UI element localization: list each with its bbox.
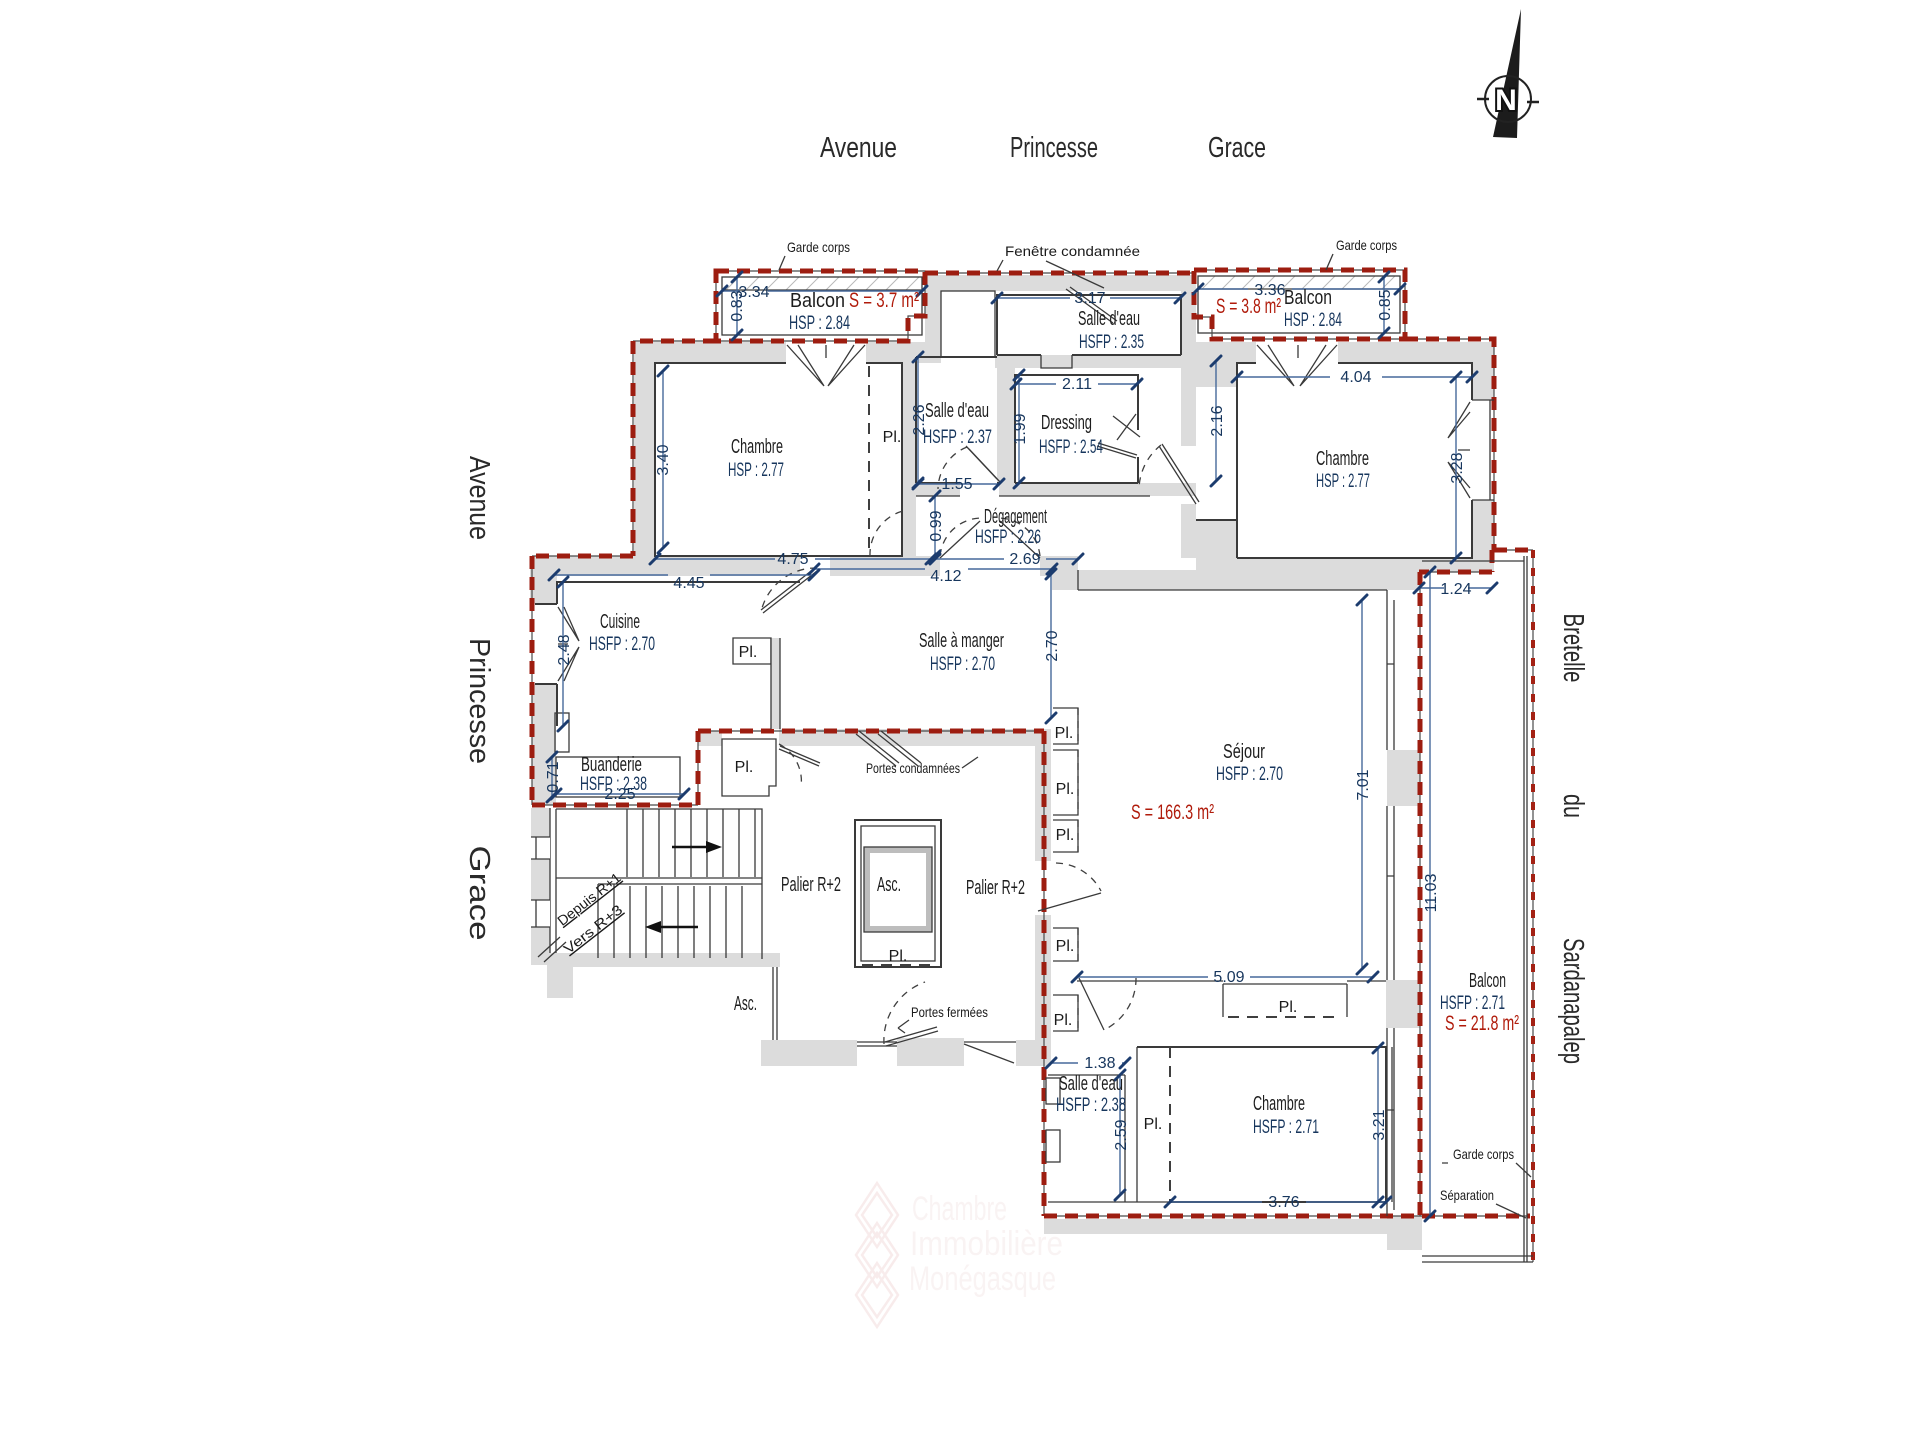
svg-text:Salle d'eau: Salle d'eau (1059, 1073, 1123, 1095)
svg-text:HSFP : 2.71: HSFP : 2.71 (1440, 993, 1505, 1014)
svg-text:Pl.: Pl. (1279, 999, 1298, 1016)
svg-text:Chambre: Chambre (912, 1190, 1007, 1228)
svg-text:Pl.: Pl. (1056, 938, 1075, 955)
svg-text:Grace: Grace (1208, 132, 1266, 164)
svg-text:Asc.: Asc. (877, 874, 901, 896)
svg-text:Sardanapalep: Sardanapalep (1557, 938, 1589, 1064)
svg-text:N: N (1495, 84, 1517, 117)
svg-text:5.09: 5.09 (1213, 969, 1244, 986)
svg-text:Pl.: Pl. (883, 429, 902, 446)
svg-text:4.45: 4.45 (673, 575, 704, 592)
svg-text:11.03: 11.03 (1423, 873, 1440, 912)
svg-text:Palier R+2: Palier R+2 (781, 874, 841, 896)
svg-text:Pl.: Pl. (739, 644, 758, 661)
svg-text:4.04: 4.04 (1340, 369, 1371, 386)
svg-text:Immobilière: Immobilière (910, 1225, 1063, 1263)
svg-text:Fenêtre condamnée: Fenêtre condamnée (1005, 243, 1140, 259)
svg-text:4.75: 4.75 (777, 551, 808, 568)
svg-text:Bretelle: Bretelle (1557, 614, 1589, 683)
svg-text:2.16: 2.16 (1209, 405, 1226, 436)
svg-text:Pl.: Pl. (889, 948, 908, 965)
svg-text:Balcon: Balcon (790, 290, 845, 312)
svg-text:2.59: 2.59 (1113, 1119, 1130, 1150)
svg-text:HSFP : 2.35: HSFP : 2.35 (1079, 332, 1144, 353)
svg-text:Palier R+2: Palier R+2 (966, 877, 1025, 899)
svg-text:Balcon: Balcon (1284, 287, 1332, 309)
svg-text:Pl.: Pl. (1056, 781, 1075, 798)
svg-text:3.21: 3.21 (1371, 1109, 1388, 1140)
svg-text:HSFP : 2.26: HSFP : 2.26 (975, 527, 1041, 548)
svg-text:HSFP : 2.37: HSFP : 2.37 (923, 427, 992, 448)
svg-text:0.85: 0.85 (1377, 289, 1394, 320)
svg-text:S = 3.7 m²: S = 3.7 m² (849, 289, 919, 312)
svg-text:Pl.: Pl. (1144, 1116, 1163, 1133)
svg-text:Grace: Grace (463, 846, 495, 941)
svg-text:0.71: 0.71 (545, 761, 562, 792)
svg-text:HSFP : 2.70: HSFP : 2.70 (589, 634, 655, 655)
svg-text:0.83: 0.83 (729, 290, 746, 321)
svg-text:Cuisine: Cuisine (600, 611, 640, 633)
svg-text:1.38: 1.38 (1084, 1055, 1115, 1072)
svg-text:Princesse: Princesse (1010, 132, 1098, 164)
svg-text:HSFP : 2.70: HSFP : 2.70 (930, 654, 995, 675)
svg-text:4.12: 4.12 (930, 568, 961, 585)
svg-text:HSFP : 2.38: HSFP : 2.38 (580, 774, 647, 795)
svg-text:Salle d'eau: Salle d'eau (1078, 308, 1140, 330)
svg-text:Pl.: Pl. (1055, 725, 1074, 742)
svg-text:0.99: 0.99 (928, 510, 945, 541)
svg-text:HSP : 2.84: HSP : 2.84 (789, 313, 850, 334)
svg-text:3.28: 3.28 (1449, 452, 1466, 483)
svg-text:HSFP : 2.71: HSFP : 2.71 (1253, 1117, 1319, 1138)
svg-text:Séjour: Séjour (1223, 741, 1265, 763)
svg-text:7.01: 7.01 (1355, 769, 1372, 800)
svg-text:2.69: 2.69 (1009, 551, 1040, 568)
svg-text:Salle à manger: Salle à manger (919, 630, 1004, 652)
svg-text:S = 21.8 m²: S = 21.8 m² (1445, 1012, 1519, 1035)
svg-text:HSP : 2.77: HSP : 2.77 (1316, 471, 1370, 492)
svg-text:HSFP : 2.70: HSFP : 2.70 (1216, 764, 1283, 785)
svg-text:2.48: 2.48 (556, 634, 573, 665)
svg-text:Chambre: Chambre (1253, 1093, 1305, 1115)
svg-text:du: du (1557, 794, 1589, 818)
svg-text:Pl.: Pl. (1056, 827, 1075, 844)
svg-text:Garde corps: Garde corps (787, 239, 850, 255)
svg-text:Pl.: Pl. (735, 759, 754, 776)
svg-text:2.70: 2.70 (1044, 630, 1061, 661)
svg-text:Buanderie: Buanderie (581, 754, 642, 776)
svg-text:Portes fermées: Portes fermées (911, 1004, 988, 1020)
svg-text:HSP : 2.84: HSP : 2.84 (1284, 310, 1342, 331)
svg-text:HSFP : 2.54: HSFP : 2.54 (1039, 437, 1103, 458)
svg-text:S = 3.8 m²: S = 3.8 m² (1216, 295, 1281, 318)
svg-text:HSP : 2.77: HSP : 2.77 (728, 460, 784, 481)
svg-text:2.11: 2.11 (1062, 376, 1092, 393)
svg-text:Monégasque: Monégasque (909, 1260, 1056, 1298)
svg-text:1.24: 1.24 (1440, 581, 1471, 598)
svg-text:Garde corps: Garde corps (1453, 1146, 1514, 1162)
svg-text:HSFP : 2.38: HSFP : 2.38 (1056, 1095, 1126, 1116)
svg-text:3.40: 3.40 (655, 444, 672, 475)
svg-text:Avenue: Avenue (463, 456, 495, 540)
svg-text:Dégagement: Dégagement (984, 506, 1047, 528)
svg-text:Séparation: Séparation (1440, 1187, 1494, 1203)
svg-text:Chambre: Chambre (1316, 448, 1369, 470)
svg-text:Portes condamnées: Portes condamnées (866, 760, 960, 776)
svg-text:Princesse: Princesse (463, 638, 495, 764)
svg-text:Avenue: Avenue (820, 132, 897, 164)
svg-text:3.76: 3.76 (1268, 1194, 1299, 1211)
svg-text:Balcon: Balcon (1469, 970, 1506, 992)
svg-text:3.17: 3.17 (1074, 290, 1105, 307)
svg-text:Pl.: Pl. (1054, 1012, 1073, 1029)
svg-text:1.99: 1.99 (1012, 413, 1029, 444)
svg-text:1.55: 1.55 (941, 476, 972, 493)
svg-text:Asc.: Asc. (734, 993, 757, 1015)
svg-text:Salle d'eau: Salle d'eau (925, 400, 989, 422)
svg-text:Chambre: Chambre (731, 436, 783, 458)
svg-text:Garde corps: Garde corps (1336, 237, 1397, 253)
svg-text:Dressing: Dressing (1041, 412, 1092, 434)
svg-text:S = 166.3 m²: S = 166.3 m² (1131, 801, 1214, 824)
